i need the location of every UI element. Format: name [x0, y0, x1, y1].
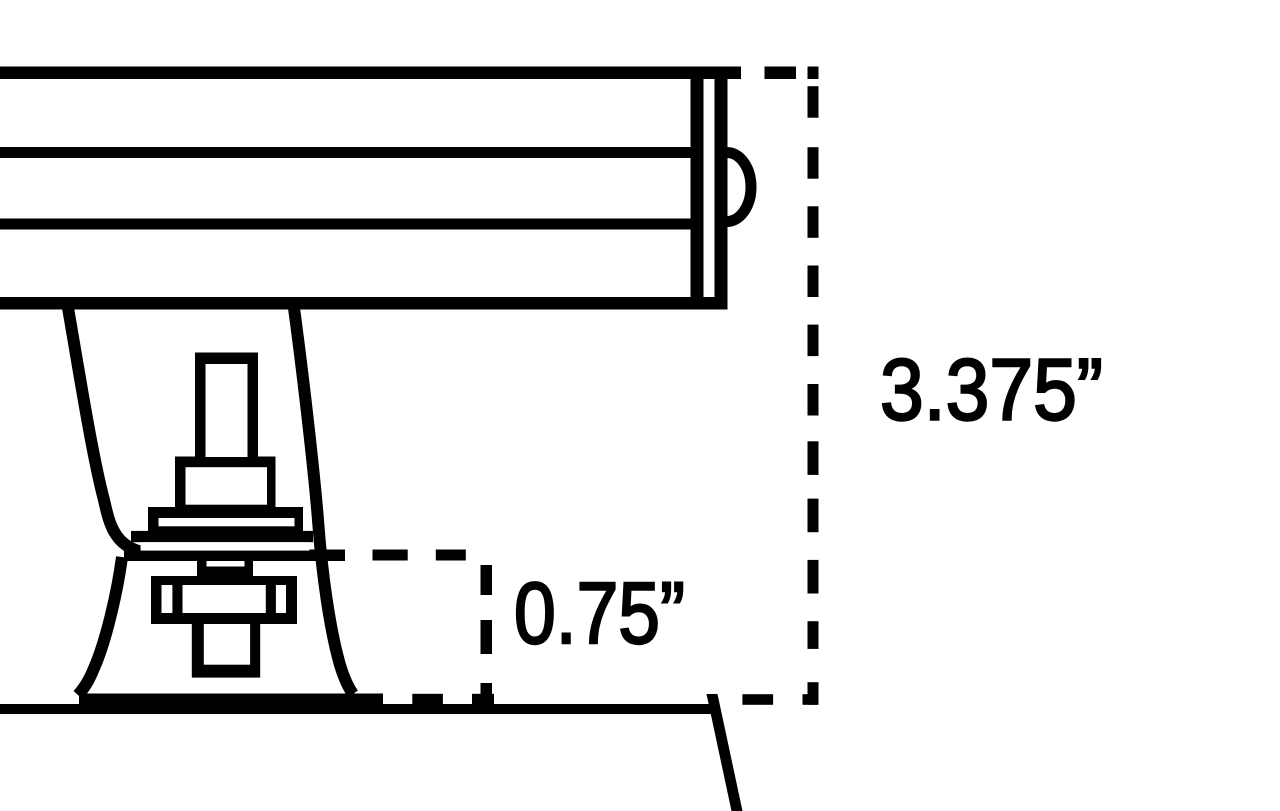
svg-text:0.75”: 0.75” — [514, 565, 685, 662]
svg-text:3.375”: 3.375” — [880, 342, 1103, 439]
